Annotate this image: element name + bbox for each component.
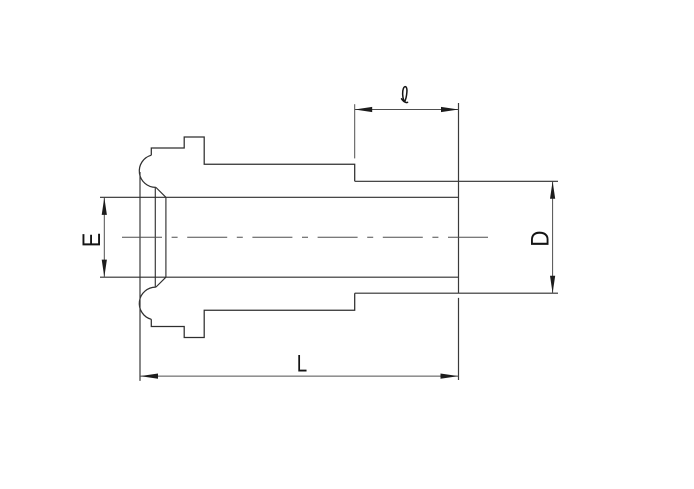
svg-text:L: L [297,351,307,378]
svg-text:E: E [78,233,106,247]
svg-text:D: D [526,230,554,246]
